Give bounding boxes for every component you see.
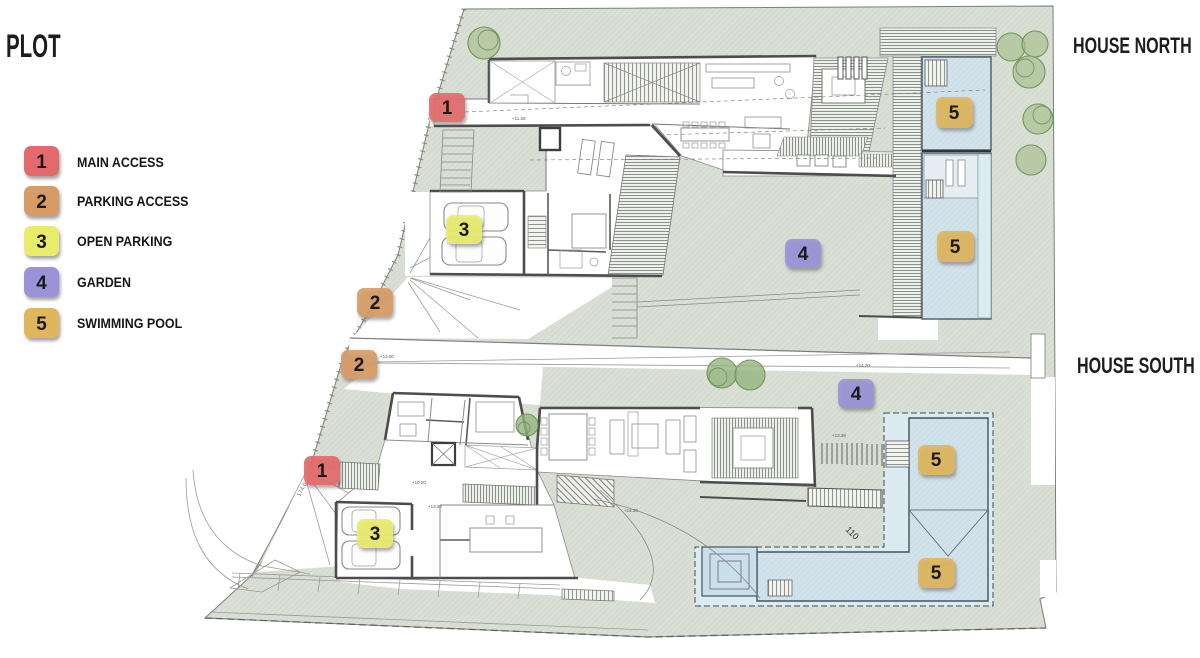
svg-text:1: 1 — [442, 98, 453, 119]
svg-text:+11.28: +11.28 — [512, 116, 526, 121]
svg-text:+13.38: +13.38 — [832, 433, 846, 438]
svg-text:3: 3 — [370, 524, 381, 545]
svg-text:+10.20: +10.20 — [412, 480, 426, 485]
svg-text:4: 4 — [851, 384, 862, 405]
svg-text:3: 3 — [36, 232, 47, 253]
svg-text:1: 1 — [36, 152, 47, 173]
svg-text:5: 5 — [931, 450, 942, 471]
svg-text:4: 4 — [36, 273, 47, 294]
svg-text:4: 4 — [798, 244, 809, 265]
svg-text:2: 2 — [370, 293, 381, 314]
svg-text:1: 1 — [317, 461, 328, 482]
svg-text:+14.20: +14.20 — [856, 363, 870, 368]
svg-text:3: 3 — [459, 220, 470, 241]
svg-text:+14.20: +14.20 — [624, 508, 638, 513]
svg-text:5: 5 — [36, 314, 47, 335]
svg-text:5: 5 — [950, 237, 961, 258]
svg-text:2: 2 — [36, 192, 47, 213]
svg-text:+13.00: +13.00 — [380, 354, 394, 359]
svg-text:+13.20: +13.20 — [428, 504, 442, 509]
svg-text:5: 5 — [949, 103, 960, 124]
svg-text:5: 5 — [931, 563, 942, 584]
svg-text:2: 2 — [354, 355, 365, 376]
